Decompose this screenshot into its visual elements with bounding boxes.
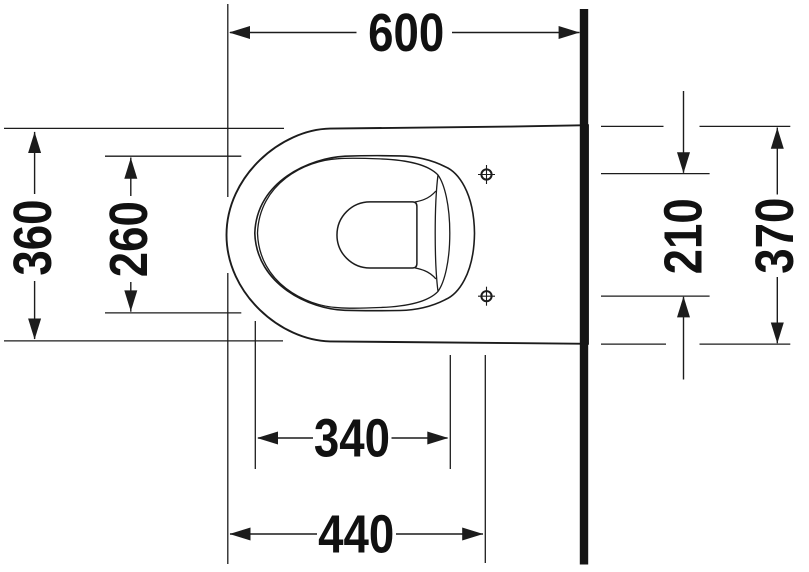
svg-text:210: 210 bbox=[653, 198, 713, 274]
svg-text:440: 440 bbox=[318, 504, 394, 564]
svg-text:340: 340 bbox=[314, 408, 390, 468]
svg-text:370: 370 bbox=[744, 198, 804, 274]
svg-text:600: 600 bbox=[368, 2, 444, 62]
svg-text:260: 260 bbox=[98, 201, 158, 277]
svg-text:360: 360 bbox=[3, 200, 63, 276]
